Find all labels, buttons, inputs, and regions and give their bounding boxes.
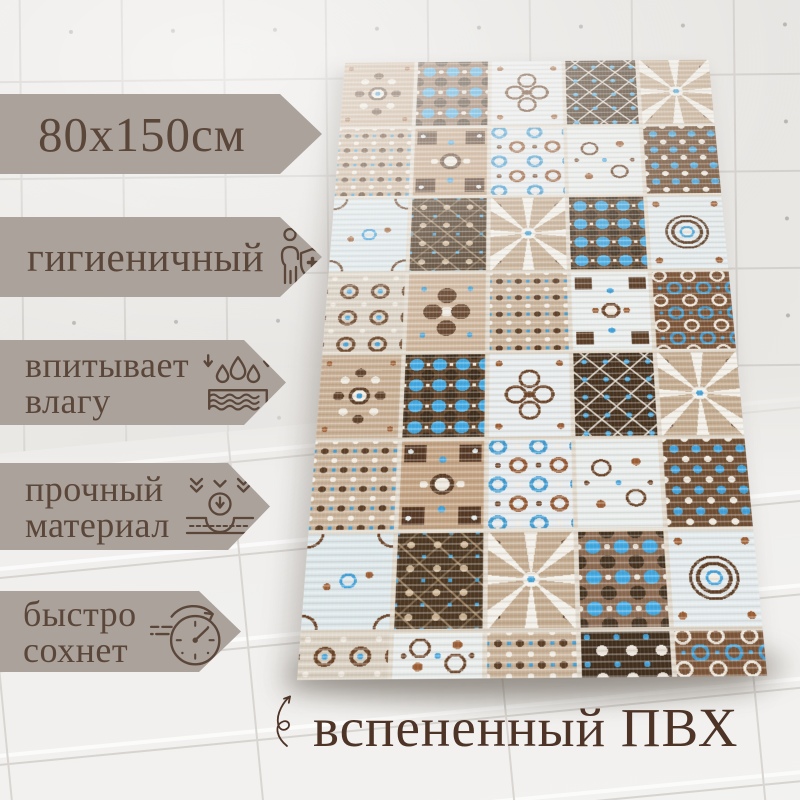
material-text: вспененный ПВХ — [313, 700, 739, 755]
mat-tile-damask — [567, 127, 643, 195]
size-banner: 80x150см — [0, 94, 322, 174]
feature-banner-quick-dry: быстро сохнет — [0, 591, 241, 672]
mat-tile-cornersquares — [413, 128, 488, 196]
mat-tile-brownmedallion — [668, 531, 762, 627]
mat-tile-medallion — [340, 62, 415, 126]
mat-tile-cornerfloral — [571, 272, 652, 350]
mat-tile-rings — [491, 127, 565, 195]
water-absorb-drops-icon — [201, 353, 275, 413]
mat-tile-brownrings — [297, 634, 389, 680]
mat-tile-bluemosaic — [662, 438, 753, 527]
mat-tile-darkdiag — [409, 198, 486, 271]
bath-mat — [297, 60, 767, 680]
mat-tile-snowflake — [487, 532, 575, 628]
mat-tile-darkdots — [581, 631, 672, 677]
feature-text-hygienic: гигиеничный — [27, 237, 264, 278]
size-text: 80x150см — [38, 110, 246, 159]
mat-tile-quatrefoil — [491, 61, 563, 125]
curly-arrow-up-doodle-icon — [271, 684, 301, 748]
feature-banner-durable: прочный материал — [0, 463, 270, 550]
material-caption: вспененный ПВХ — [271, 684, 739, 755]
product-card-image: 80x150см гигиеничный впитывает влагу — [0, 0, 800, 800]
feature-text-durable-1: прочный — [25, 471, 170, 507]
mat-tile-bluemosaic — [643, 126, 721, 194]
mat-tile-bluebutterfly — [402, 354, 485, 437]
mat-tile-darklattice — [565, 60, 638, 124]
feature-text-quickdry-2: сохнет — [23, 632, 137, 668]
mat-tile-rings — [488, 440, 573, 529]
mat-tile-snowflake — [639, 60, 715, 124]
mat-tile-damask — [392, 633, 482, 679]
feature-text-durable-2: материал — [25, 507, 170, 543]
mat-tile-smallmosaic — [309, 441, 398, 530]
durable-material-pressure-icon — [182, 476, 258, 538]
mat-tile-smallmosaic — [490, 273, 569, 351]
feature-text-quickdry-1: быстро — [23, 596, 137, 632]
mat-tile-bluerings — [674, 631, 767, 677]
mat-tile-smallmosaic — [335, 128, 412, 196]
mat-tile-quatrefoil — [489, 353, 571, 436]
mat-tile-bluebutterfly — [569, 197, 647, 270]
feature-text-absorbs-1: впитывает — [25, 347, 189, 383]
feature-text-absorbs-2: влагу — [25, 383, 189, 419]
mat-tile-scrollcorner — [301, 534, 394, 630]
mat-tile-medallion — [316, 355, 402, 438]
mat-tile-darkdiag — [394, 533, 483, 629]
mat-tile-cornersquares — [398, 440, 484, 529]
mat-tile-bigquatrefoil — [406, 274, 486, 352]
mat-tile-darklattice — [573, 353, 657, 436]
mat-tile-scrollcorner — [329, 199, 409, 272]
mat-tile-damask — [576, 439, 663, 528]
feature-banner-hygienic: гигиеничный — [0, 217, 322, 297]
mat-tile-snowflake — [490, 198, 567, 271]
quick-dry-stopwatch-icon — [147, 596, 227, 668]
mat-tile-brownmedallion — [647, 196, 728, 269]
mat-tile-bluefloral — [578, 532, 669, 628]
mat-tile-brownrings — [323, 274, 406, 352]
mat-tile-bluefloral — [416, 62, 488, 126]
mat-tile-bluerings — [652, 271, 736, 349]
feature-banner-absorbs: впитывает влагу — [0, 340, 286, 425]
mat-pattern-grid — [297, 60, 767, 680]
mat-tile-snowflake — [657, 352, 744, 435]
mat-tile-smallmosaic — [487, 632, 577, 678]
